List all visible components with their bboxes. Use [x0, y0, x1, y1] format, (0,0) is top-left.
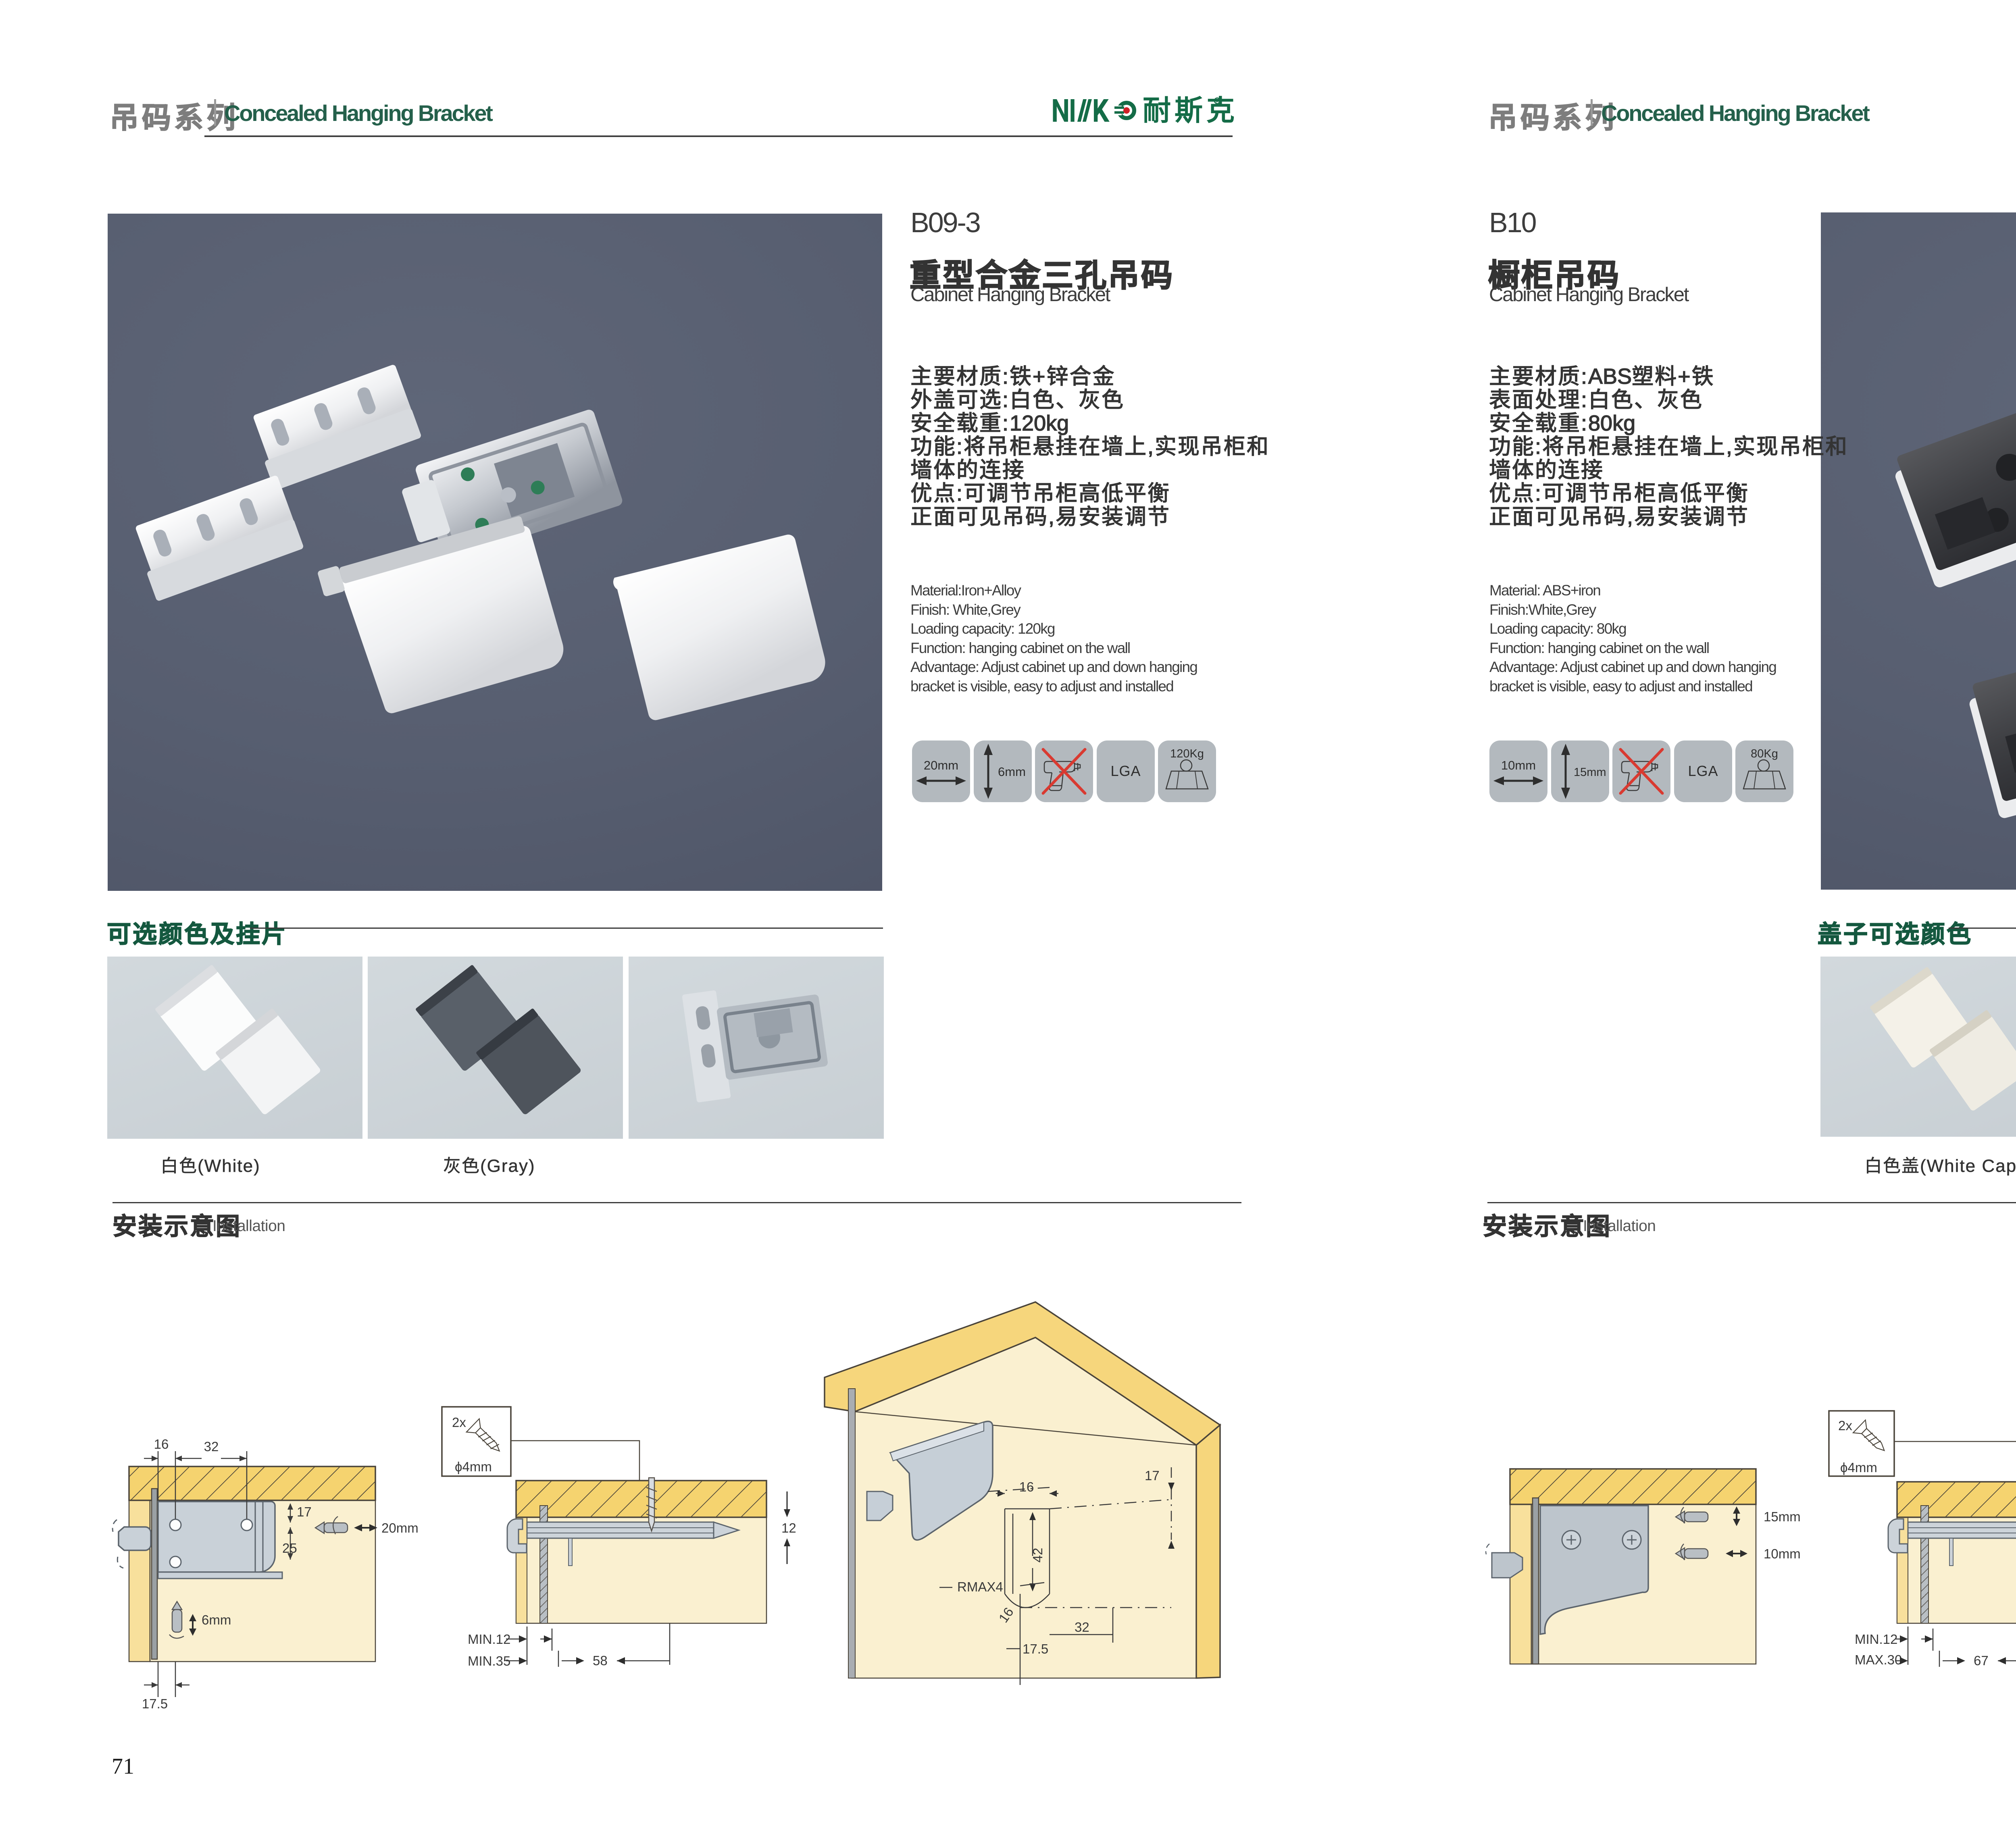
svg-text:MIN.12: MIN.12	[468, 1632, 510, 1647]
svg-text:RMAX4: RMAX4	[957, 1579, 1003, 1594]
svg-text:16: 16	[154, 1437, 169, 1452]
svg-text:80Kg: 80Kg	[1751, 747, 1778, 760]
svg-text:R: R	[1216, 99, 1219, 104]
svg-text:15mm: 15mm	[1764, 1509, 1801, 1524]
svg-text:58: 58	[593, 1653, 608, 1668]
svg-text:32: 32	[204, 1439, 219, 1454]
svg-text:12: 12	[781, 1520, 796, 1535]
svg-text:25: 25	[282, 1541, 297, 1556]
svg-text:ϕ4mm: ϕ4mm	[455, 1459, 492, 1474]
svg-text:17.5: 17.5	[142, 1696, 168, 1711]
svg-text:10mm: 10mm	[1764, 1546, 1801, 1561]
svg-text:32: 32	[1075, 1620, 1089, 1635]
svg-text:LGA: LGA	[1688, 763, 1718, 779]
svg-text:16: 16	[1019, 1479, 1034, 1494]
svg-text:20mm: 20mm	[924, 758, 958, 772]
svg-text:15mm: 15mm	[1574, 766, 1606, 779]
svg-text:17.5: 17.5	[1023, 1641, 1048, 1656]
svg-text:2x: 2x	[1838, 1418, 1852, 1433]
svg-text:67: 67	[1974, 1653, 1989, 1668]
svg-text:6mm: 6mm	[202, 1612, 231, 1627]
svg-text:6mm: 6mm	[998, 765, 1026, 779]
svg-text:10mm: 10mm	[1501, 758, 1536, 772]
svg-text:LGA: LGA	[1110, 763, 1141, 779]
svg-text:耐斯克: 耐斯克	[1143, 95, 1238, 126]
svg-text:17: 17	[297, 1504, 312, 1519]
svg-text:20mm: 20mm	[381, 1520, 419, 1535]
svg-text:17: 17	[1145, 1468, 1160, 1483]
svg-text:2x: 2x	[452, 1415, 466, 1430]
svg-text:MIN.35: MIN.35	[468, 1654, 510, 1668]
svg-text:42: 42	[1030, 1548, 1045, 1563]
svg-text:ϕ4mm: ϕ4mm	[1840, 1460, 1877, 1475]
svg-text:120Kg: 120Kg	[1170, 747, 1204, 760]
